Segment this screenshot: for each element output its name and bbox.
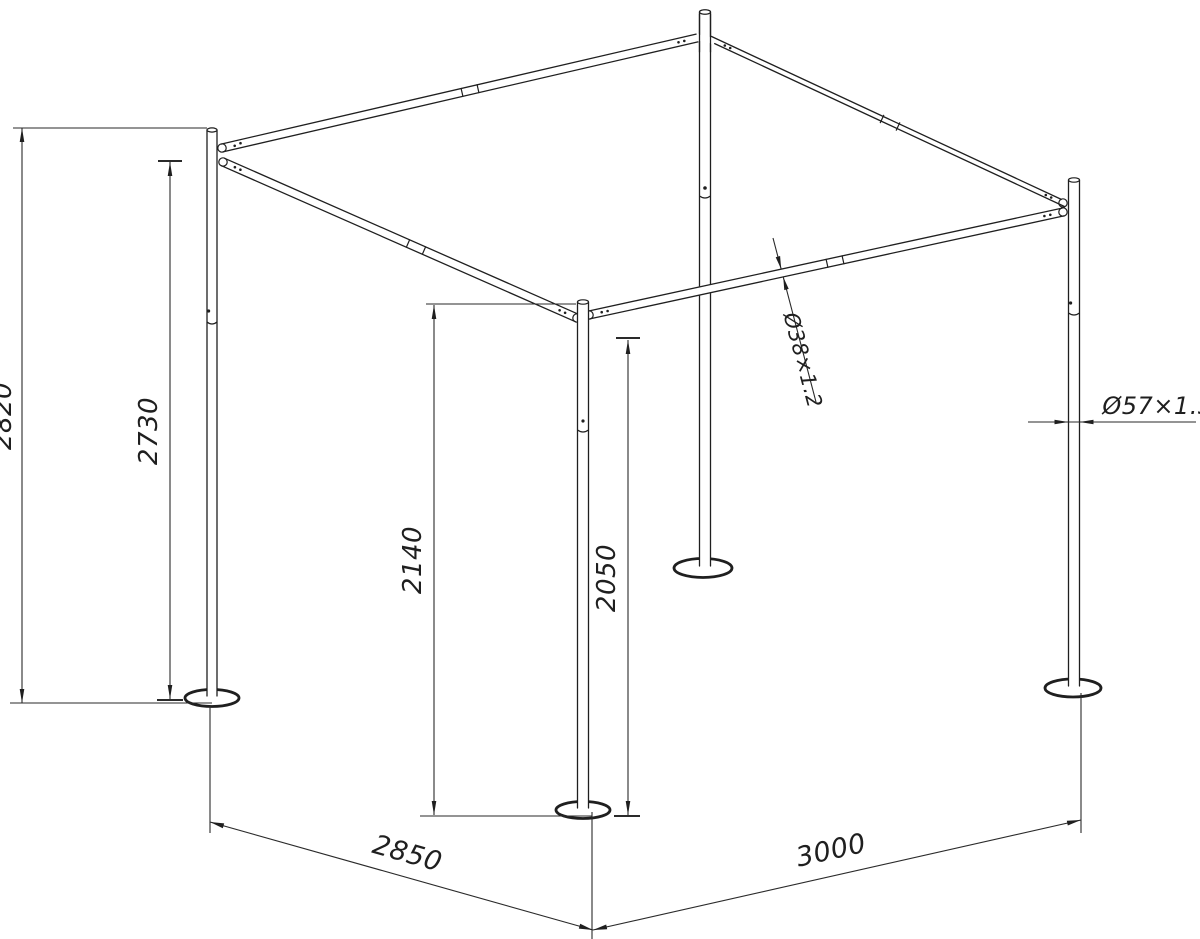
arrowhead	[783, 277, 789, 290]
dimension-labels: 2820 2730 2140 2050 Ø38×1.2 Ø57×1.3 2850…	[0, 309, 1200, 878]
arrowhead	[168, 685, 173, 699]
screw-dot	[564, 312, 567, 315]
left-post-cap	[207, 128, 217, 132]
dim-label-roof-tube: Ø38×1.2	[778, 309, 827, 411]
screw-dot	[1050, 196, 1053, 199]
arrowhead	[432, 801, 437, 815]
right-post	[1045, 178, 1101, 697]
roof-rails	[218, 10, 1067, 322]
arrowhead	[210, 822, 224, 828]
screw-dot	[1043, 215, 1046, 218]
screw-dot	[683, 40, 686, 43]
rail-core	[223, 162, 577, 318]
dim-label-rear-post-height: 2730	[134, 397, 164, 465]
extension-lines	[10, 128, 1081, 939]
screw-dot	[558, 309, 561, 312]
screw-dot	[606, 310, 609, 313]
screw-dot	[234, 166, 237, 169]
screw-dot	[724, 44, 727, 47]
arrowhead	[1067, 820, 1081, 826]
screw-dot	[239, 168, 242, 171]
arrowhead	[579, 924, 593, 930]
dim-label-front-post-height: 2050	[592, 544, 622, 612]
screw-dot	[729, 47, 732, 50]
rail-core	[589, 212, 1063, 315]
left-post-screw	[207, 309, 210, 312]
drawing-canvas: 2820 2730 2140 2050 Ø38×1.2 Ø57×1.3 2850…	[0, 0, 1200, 939]
right-post-screw	[1069, 301, 1072, 304]
rail-front-left	[219, 158, 581, 322]
left-post-body	[207, 130, 217, 696]
arrowhead	[432, 305, 437, 319]
dim-label-front-corner-height: 2140	[398, 526, 428, 594]
rail-core	[713, 40, 1063, 203]
arrowhead	[20, 689, 25, 703]
screw-dot	[677, 41, 680, 44]
rear-post-cap	[700, 10, 711, 14]
arrowhead	[168, 162, 173, 176]
dim-label-overall-height: 2820	[0, 382, 18, 450]
front-post-body	[578, 302, 589, 808]
rail-rear-left	[218, 34, 698, 152]
arrowhead	[1055, 420, 1069, 425]
dim-ticks	[157, 161, 640, 816]
rail-front-right	[585, 208, 1067, 319]
arrowhead	[1080, 420, 1094, 425]
frame-dimension-drawing: 2820 2730 2140 2050 Ø38×1.2 Ø57×1.3 2850…	[0, 0, 1200, 939]
arrowhead	[626, 340, 631, 354]
screw-dot	[239, 142, 242, 145]
rail-core	[222, 38, 697, 148]
arrowhead	[593, 925, 607, 931]
dim-label-base-width: 3000	[793, 828, 869, 874]
right-post-body	[1069, 180, 1080, 686]
screw-dot	[233, 145, 236, 148]
dim-label-base-depth: 2850	[369, 829, 445, 878]
front-post-screw	[581, 419, 584, 422]
arrowhead	[20, 128, 25, 142]
dimensions	[10, 128, 1196, 939]
screw-dot	[1049, 214, 1052, 217]
screw-dot	[600, 311, 603, 314]
left-post	[185, 128, 239, 707]
arrowhead	[626, 801, 631, 815]
rail-rear-right	[711, 36, 1067, 207]
front-post-cap	[578, 300, 589, 304]
screw-dot	[1045, 194, 1048, 197]
dim-label-post-tube: Ø57×1.3	[1101, 392, 1200, 420]
arrowhead	[776, 256, 782, 269]
right-post-cap	[1069, 178, 1080, 182]
rear-post-screw	[703, 186, 707, 190]
